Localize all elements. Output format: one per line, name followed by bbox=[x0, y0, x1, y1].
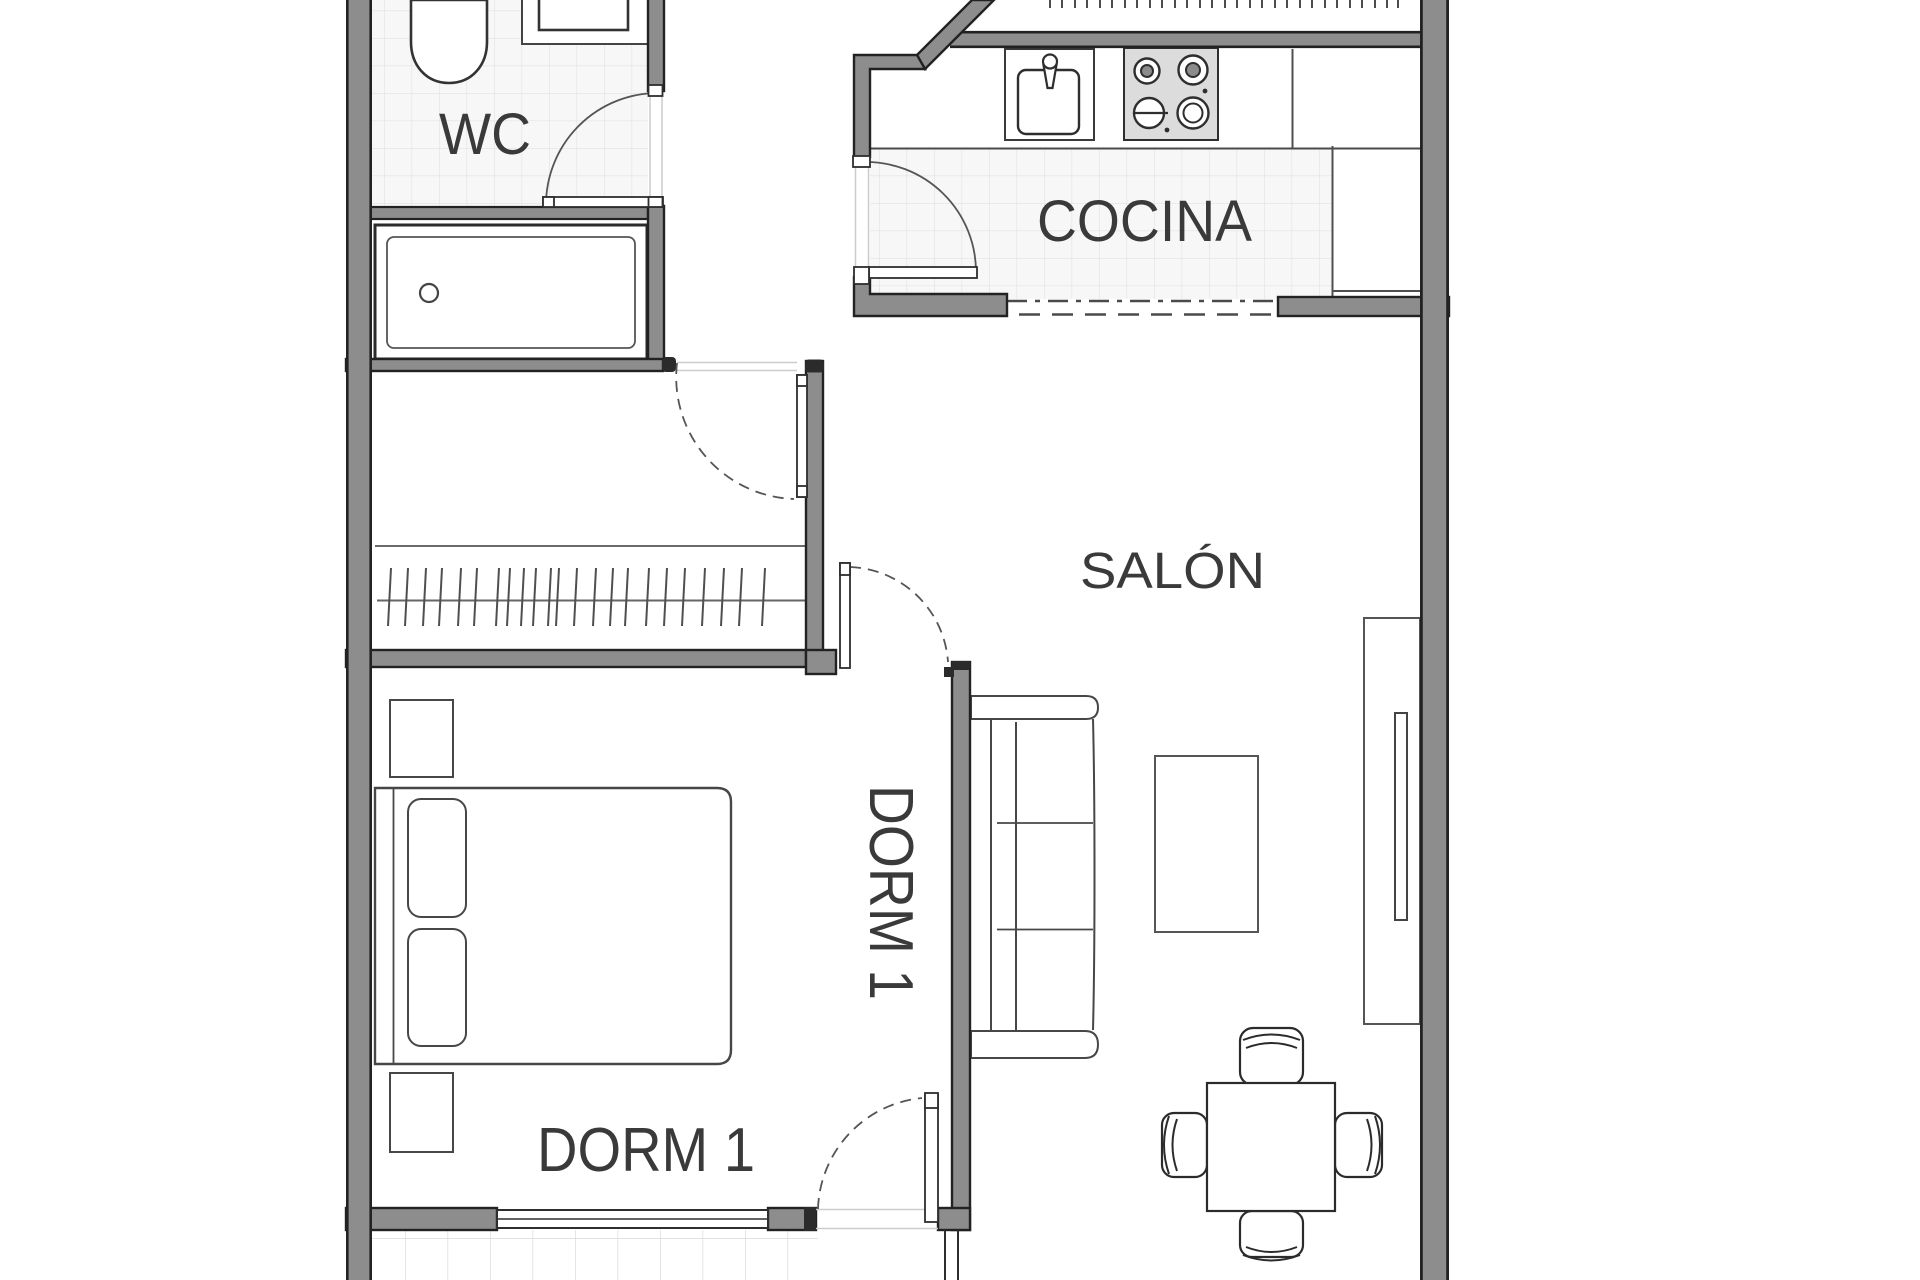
svg-text:WC: WC bbox=[439, 102, 531, 167]
svg-text:SALÓN: SALÓN bbox=[1080, 542, 1265, 599]
svg-text:DORM 1: DORM 1 bbox=[537, 1116, 755, 1185]
svg-text:COCINA: COCINA bbox=[1037, 189, 1252, 254]
svg-text:DORM 1: DORM 1 bbox=[856, 785, 925, 1000]
